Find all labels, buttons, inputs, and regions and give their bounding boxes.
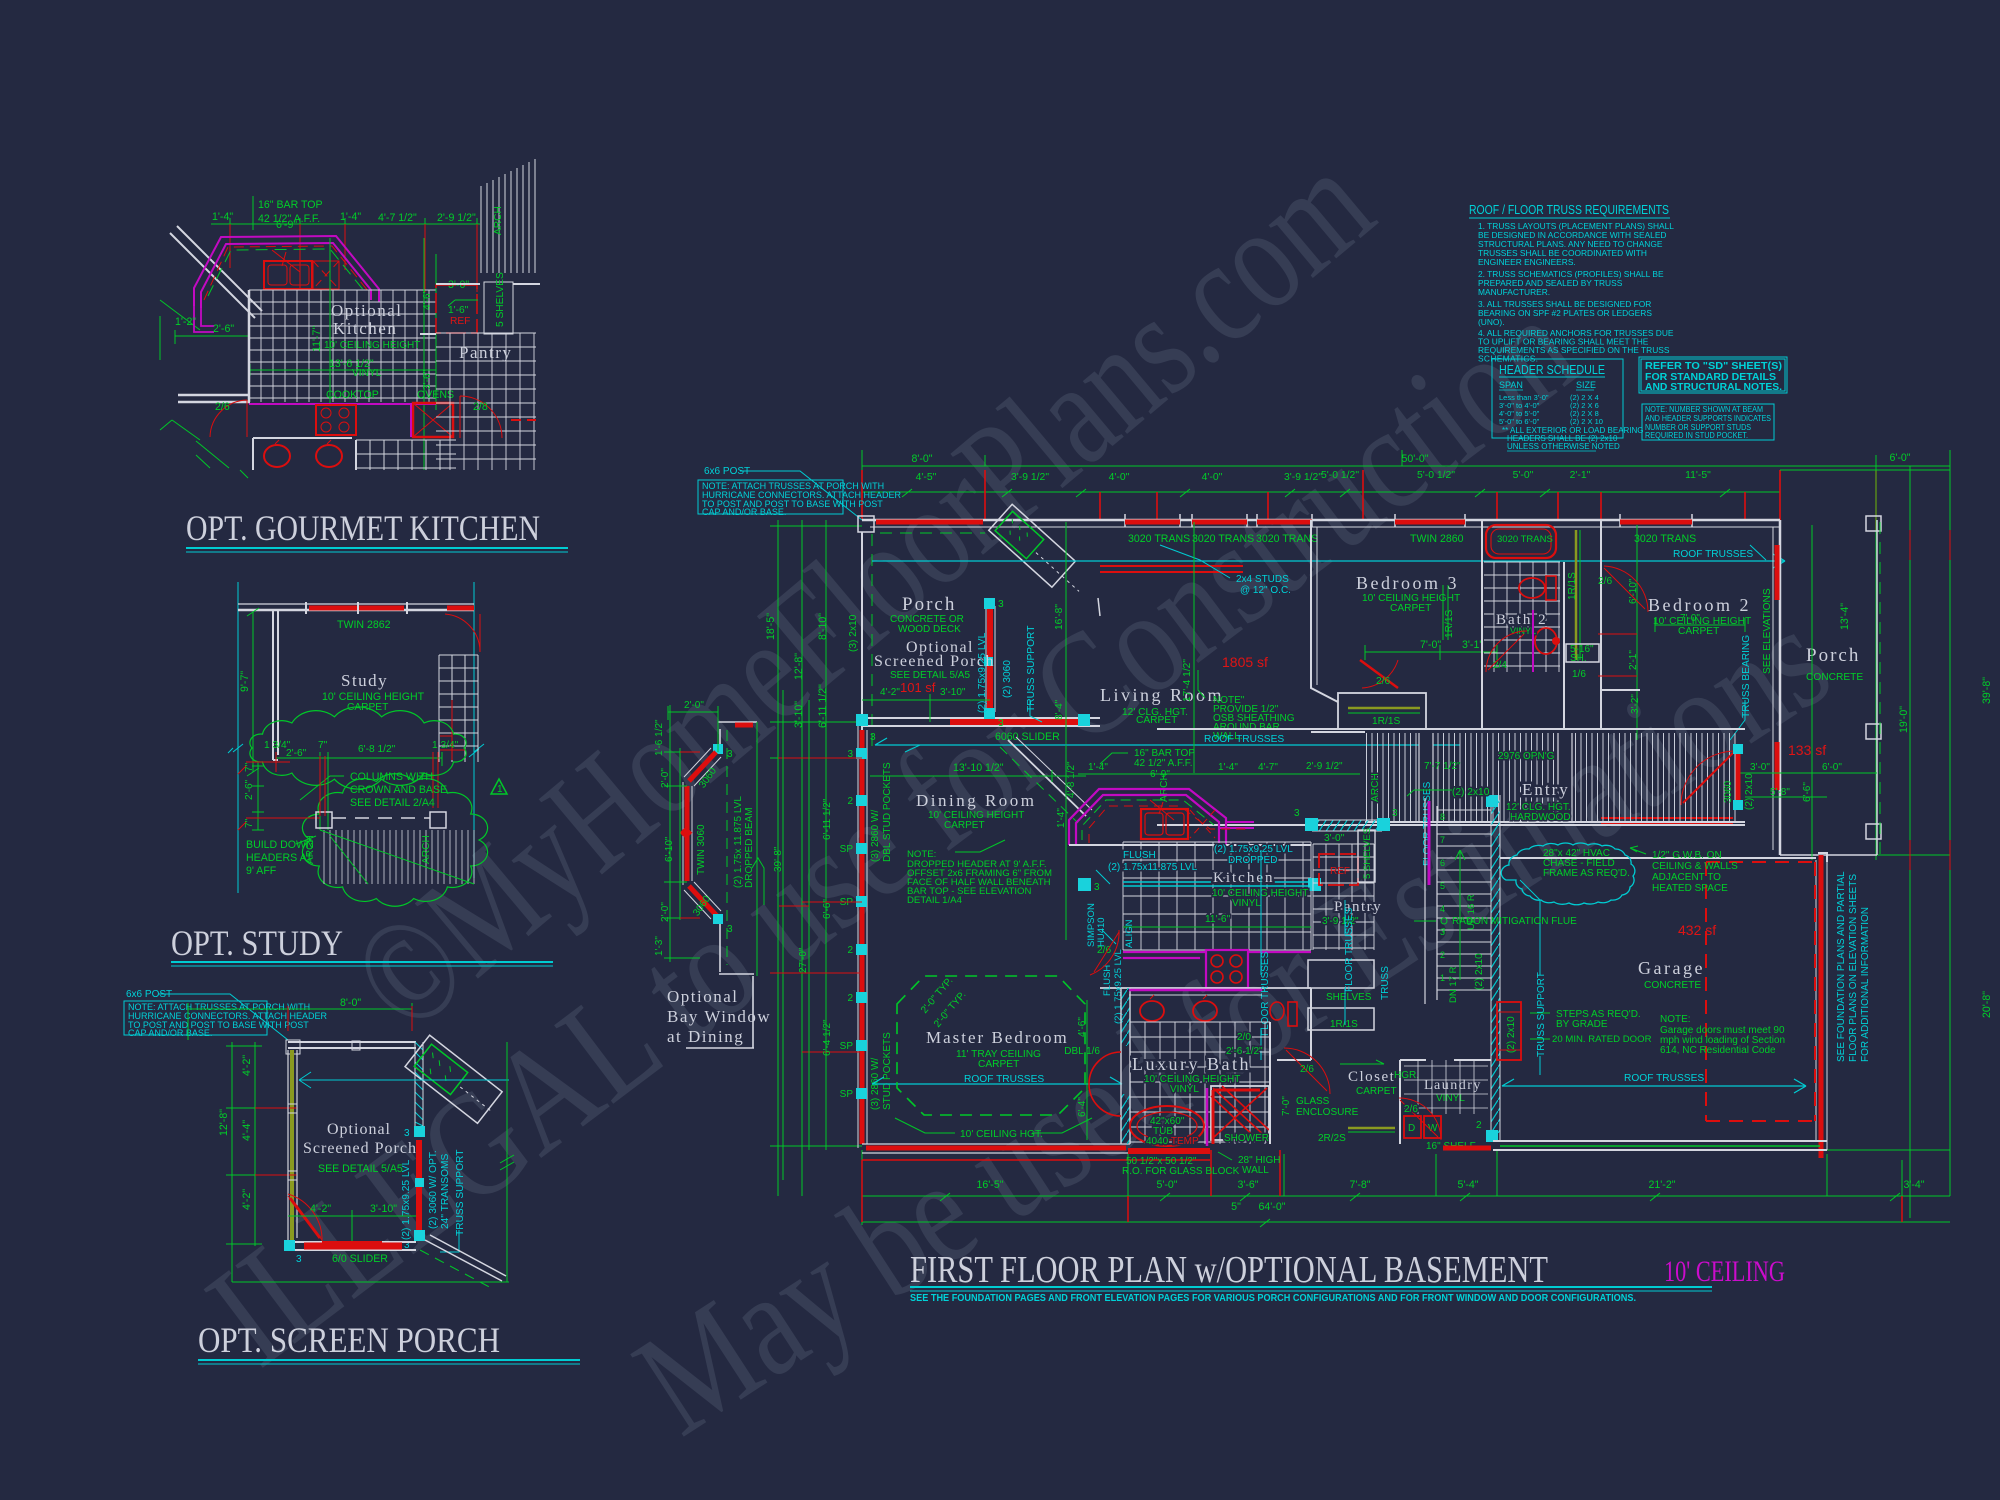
svg-text:CONCRETE: CONCRETE — [1806, 672, 1863, 683]
svg-text:9' AFF: 9' AFF — [246, 865, 277, 877]
svg-text:4'-5": 4'-5" — [916, 472, 937, 483]
svg-text:FOR ADDITIONAL INFORMATION: FOR ADDITIONAL INFORMATION — [1860, 907, 1871, 1062]
svg-text:CONCRETE: CONCRETE — [1644, 980, 1701, 991]
svg-text:2976 OPN'G: 2976 OPN'G — [1498, 751, 1555, 762]
svg-text:VINYL: VINYL — [1170, 1084, 1199, 1095]
svg-text:1R/1S: 1R/1S — [1444, 609, 1455, 638]
svg-text:CAP AND/OR BASE.: CAP AND/OR BASE. — [128, 1028, 212, 1038]
svg-text:4'-7 1/2": 4'-7 1/2" — [378, 212, 417, 224]
svg-text:27'-0": 27'-0" — [798, 947, 809, 973]
svg-text:DROPPED: DROPPED — [1228, 855, 1277, 866]
svg-text:4040 TEMP: 4040 TEMP — [1146, 1136, 1199, 1147]
svg-text:3: 3 — [998, 599, 1004, 610]
svg-text:5'-0": 5'-0" — [1156, 1179, 1177, 1191]
svg-text:9'-7": 9'-7" — [239, 671, 251, 692]
svg-text:RADON MITIGATION FLUE: RADON MITIGATION FLUE — [1452, 916, 1577, 927]
svg-text:11'-6": 11'-6" — [1205, 914, 1231, 925]
svg-text:R.O. FOR GLASS BLOCK: R.O. FOR GLASS BLOCK — [1122, 1166, 1240, 1177]
svg-text:4: 4 — [1440, 904, 1445, 914]
svg-text:REF: REF — [450, 316, 470, 327]
svg-text:(3) 2860 W/: (3) 2860 W/ — [870, 810, 881, 862]
svg-text:(UNO).: (UNO). — [1478, 317, 1505, 327]
svg-text:4'-6": 4'-6" — [1077, 1017, 1088, 1037]
svg-text:FIRST FLOOR PLAN w/OPTIONAL: FIRST FLOOR PLAN w/OPTIONAL BASEMENT — [910, 1249, 1548, 1291]
svg-text:DN 17 R: DN 17 R — [1448, 966, 1459, 1003]
svg-text:TRUSS BEARING: TRUSS BEARING — [1741, 635, 1752, 718]
svg-text:20'-8": 20'-8" — [1981, 991, 1993, 1018]
svg-text:5'-8": 5'-8" — [1770, 787, 1790, 798]
svg-text:(2) 1.75x9.25 LVL: (2) 1.75x9.25 LVL — [401, 1159, 412, 1240]
svg-text:REQUIRED IN STUD POCKET.: REQUIRED IN STUD POCKET. — [1645, 431, 1748, 440]
svg-text:614, NC Residential Code: 614, NC Residential Code — [1660, 1045, 1776, 1056]
svg-text:Luxury Bath: Luxury Bath — [1132, 1054, 1251, 1074]
svg-text:CARPET: CARPET — [1390, 603, 1431, 614]
svg-text:4'-2": 4'-2" — [880, 687, 900, 698]
svg-text:1R/1S: 1R/1S — [1330, 1019, 1358, 1030]
svg-text:6'-0": 6'-0" — [1822, 762, 1842, 773]
svg-text:(2) 2 X 10: (2) 2 X 10 — [1570, 417, 1603, 426]
svg-text:2: 2 — [847, 993, 853, 1004]
svg-text:Bedroom 2: Bedroom 2 — [1648, 595, 1751, 615]
svg-text:20 MIN. RATED DOOR: 20 MIN. RATED DOOR — [1552, 1034, 1652, 1045]
svg-text:SH.: SH. — [1570, 653, 1587, 664]
svg-text:VINYL: VINYL — [1436, 1093, 1465, 1104]
svg-text:7": 7" — [318, 740, 328, 751]
svg-text:432 sf: 432 sf — [1678, 922, 1716, 938]
svg-text:SHELVES: SHELVES — [1326, 992, 1372, 1003]
svg-text:AND STRUCTURAL NOTES.: AND STRUCTURAL NOTES. — [1645, 382, 1782, 393]
svg-text:6'-11 1/2": 6'-11 1/2" — [817, 684, 829, 728]
svg-text:8'-0": 8'-0" — [911, 453, 932, 465]
svg-text:11'-7": 11'-7" — [311, 326, 323, 352]
svg-text:5 SHELVES: 5 SHELVES — [495, 272, 506, 327]
svg-text:17'-4 1/2": 17'-4 1/2" — [1182, 659, 1193, 702]
svg-text:2'-0": 2'-0" — [684, 700, 704, 711]
svg-text:CARPET: CARPET — [1356, 1086, 1397, 1097]
svg-text:SEE FOUNDATION PLANS AND PARTI: SEE FOUNDATION PLANS AND PARTIAL — [1836, 871, 1847, 1062]
svg-text:UNLESS OTHERWISE NOTED: UNLESS OTHERWISE NOTED — [1507, 442, 1620, 451]
svg-text:Optional: Optional — [327, 1121, 391, 1138]
svg-text:39'-8": 39'-8" — [773, 846, 784, 872]
svg-text:TWIN 2862: TWIN 2862 — [337, 619, 391, 631]
svg-text:2: 2 — [847, 796, 853, 807]
svg-text:CROWN AND BASE: CROWN AND BASE — [350, 784, 447, 796]
svg-text:Screened Porch: Screened Porch — [874, 653, 995, 670]
svg-text:1'-6": 1'-6" — [448, 305, 469, 316]
svg-text:1/6: 1/6 — [1572, 669, 1586, 680]
svg-text:TRUSS: TRUSS — [1380, 966, 1391, 1000]
svg-text:(2) 1.75x9.25 LVL: (2) 1.75x9.25 LVL — [1214, 844, 1293, 855]
svg-text:7": 7" — [244, 762, 255, 772]
svg-text:1/2" G.W.B. ON: 1/2" G.W.B. ON — [1652, 850, 1722, 861]
svg-text:5'-0": 5'-0" — [1513, 470, 1534, 481]
svg-text:WOOD DECK: WOOD DECK — [898, 624, 961, 635]
svg-text:1 3/4": 1 3/4" — [432, 740, 459, 751]
svg-text:SP: SP — [840, 1089, 854, 1100]
svg-text:TWIN 2860: TWIN 2860 — [1410, 533, 1464, 545]
svg-text:HEADER SCHEDULE: HEADER SCHEDULE — [1499, 362, 1605, 377]
svg-text:5": 5" — [1231, 1201, 1241, 1213]
svg-text:3: 3 — [1094, 882, 1100, 893]
svg-text:1'-4": 1'-4" — [1088, 762, 1108, 773]
svg-text:6: 6 — [1440, 858, 1445, 868]
svg-text:ROOF TRUSSES: ROOF TRUSSES — [1204, 734, 1284, 745]
svg-text:3060: 3060 — [1723, 780, 1734, 803]
svg-text:7'-0": 7'-0" — [1680, 613, 1700, 624]
svg-text:3020 TRANS: 3020 TRANS — [1497, 534, 1553, 545]
svg-text:5: 5 — [1440, 881, 1445, 891]
svg-text:(2) 1.75x11.875 LVL: (2) 1.75x11.875 LVL — [1108, 862, 1198, 873]
svg-text:6'-6": 6'-6" — [822, 899, 833, 919]
svg-text:133 sf: 133 sf — [1788, 742, 1826, 758]
svg-text:ARCH: ARCH — [421, 835, 432, 864]
svg-text:1: 1 — [497, 784, 503, 795]
svg-text:39'-8": 39'-8" — [1981, 677, 1993, 704]
svg-text:WALL: WALL — [1242, 1165, 1269, 1176]
svg-text:12'-8": 12'-8" — [218, 1109, 230, 1136]
svg-text:6/0 SLIDER: 6/0 SLIDER — [332, 1253, 388, 1265]
svg-text:SP: SP — [840, 844, 854, 855]
svg-text:ALIGN: ALIGN — [1124, 919, 1135, 948]
svg-text:DETAIL 1/A4: DETAIL 1/A4 — [907, 895, 963, 906]
svg-text:3: 3 — [727, 749, 733, 760]
svg-text:(2) 2x10: (2) 2x10 — [1506, 1016, 1517, 1053]
svg-text:5 SHELVES: 5 SHELVES — [1362, 828, 1373, 879]
svg-text:18'-5": 18'-5" — [765, 613, 777, 640]
svg-text:6'-11 1/2": 6'-11 1/2" — [822, 798, 833, 840]
svg-text:ARCH: ARCH — [1370, 773, 1381, 802]
svg-text:3020 TRANS: 3020 TRANS — [1192, 533, 1254, 545]
svg-text:TRUSS SUPPORT: TRUSS SUPPORT — [1026, 626, 1037, 712]
svg-text:7": 7" — [244, 818, 255, 828]
svg-text:5'-4": 5'-4" — [1457, 1179, 1478, 1191]
svg-text:SP: SP — [840, 1041, 854, 1052]
svg-text:6'-4": 6'-4" — [1077, 1097, 1088, 1117]
svg-text:2'-6": 2'-6" — [244, 779, 255, 800]
svg-text:3'-6": 3'-6" — [1237, 1179, 1258, 1191]
svg-text:2'-9 1/2": 2'-9 1/2" — [437, 212, 476, 224]
svg-text:FLOOR PLANS ON ELEVATION SHEET: FLOOR PLANS ON ELEVATION SHEETS — [1848, 874, 1859, 1062]
svg-text:8'-10": 8'-10" — [817, 613, 829, 640]
svg-text:21'-2": 21'-2" — [1649, 1179, 1676, 1191]
svg-text:2/8: 2/8 — [473, 401, 488, 413]
svg-text:7'-7 1/2": 7'-7 1/2" — [1424, 761, 1461, 772]
svg-text:CAP AND/OR BASE.: CAP AND/OR BASE. — [702, 507, 786, 517]
svg-text:ENGINEER ENGINEERS.: ENGINEER ENGINEERS. — [1478, 257, 1576, 267]
svg-text:ROOF TRUSSES: ROOF TRUSSES — [1624, 1073, 1704, 1084]
svg-text:12'-8": 12'-8" — [793, 653, 805, 680]
svg-text:SEE DETAIL 2/A4: SEE DETAIL 2/A4 — [350, 797, 435, 809]
svg-text:Bedroom 3: Bedroom 3 — [1356, 573, 1459, 593]
svg-text:DBL STUD POCKETS: DBL STUD POCKETS — [882, 762, 893, 862]
svg-text:3'-4": 3'-4" — [1903, 1179, 1924, 1191]
svg-text:3'-9 1/2": 3'-9 1/2" — [1011, 472, 1049, 483]
svg-text:COLUMNS WITH: COLUMNS WITH — [350, 771, 433, 783]
svg-text:4'-7": 4'-7" — [1258, 762, 1278, 773]
svg-text:Study: Study — [341, 671, 388, 690]
svg-text:FRAME AS REQ'D.: FRAME AS REQ'D. — [1543, 868, 1630, 879]
svg-text:CARPET: CARPET — [1678, 626, 1719, 637]
svg-text:3: 3 — [1294, 808, 1300, 819]
svg-text:101 sf: 101 sf — [900, 680, 936, 695]
svg-text:7'-0": 7'-0" — [1281, 1096, 1292, 1116]
svg-text:2'-9 1/2": 2'-9 1/2" — [1306, 761, 1343, 772]
svg-text:Master Bedroom: Master Bedroom — [926, 1028, 1069, 1047]
svg-text:2'-0": 2'-0" — [660, 902, 671, 922]
svg-text:3'-6": 3'-6" — [422, 369, 433, 390]
svg-text:4'-2": 4'-2" — [241, 1055, 253, 1076]
svg-text:7'-0": 7'-0" — [1420, 639, 1441, 651]
svg-text:ROOF / FLOOR TRUSS REQUIREMEN: ROOF / FLOOR TRUSS REQUIREMENTS — [1469, 202, 1669, 217]
svg-text:TWIN 3060: TWIN 3060 — [696, 824, 707, 875]
svg-text:Optional: Optional — [331, 301, 403, 320]
svg-text:3: 3 — [1392, 808, 1398, 819]
svg-text:3: 3 — [296, 1254, 302, 1265]
svg-text:Porch: Porch — [1806, 645, 1860, 666]
svg-text:1'-4": 1'-4" — [1056, 808, 1067, 828]
svg-text:4'-4": 4'-4" — [241, 1120, 253, 1141]
svg-text:Living Room: Living Room — [1100, 685, 1224, 705]
svg-text:Pantry: Pantry — [1334, 899, 1382, 915]
svg-text:Dining Room: Dining Room — [916, 791, 1037, 810]
svg-text:OVENS: OVENS — [417, 389, 454, 401]
svg-text:2/6: 2/6 — [1300, 1064, 1314, 1075]
svg-text:SEE ELEVATIONS: SEE ELEVATIONS — [1762, 588, 1773, 674]
svg-text:64'-0": 64'-0" — [1259, 1201, 1286, 1213]
svg-text:6060 SLIDER: 6060 SLIDER — [995, 731, 1060, 743]
svg-text:Screened Porch: Screened Porch — [303, 1140, 417, 1157]
svg-text:Kitchen: Kitchen — [333, 319, 397, 338]
svg-text:1'-2": 1'-2" — [175, 316, 196, 328]
svg-text:2: 2 — [1440, 950, 1445, 960]
svg-text:HU410: HU410 — [1096, 917, 1107, 947]
svg-text:2'-6 1/2": 2'-6 1/2" — [1226, 1046, 1263, 1057]
svg-text:1R/1S: 1R/1S — [1567, 572, 1578, 600]
svg-text:6'-9": 6'-9" — [276, 219, 297, 231]
svg-text:3: 3 — [727, 924, 733, 935]
svg-text:FLUSH: FLUSH — [1123, 850, 1156, 861]
svg-text:10' CEILING HGT.: 10' CEILING HGT. — [960, 1129, 1043, 1140]
svg-text:REF: REF — [1330, 866, 1350, 877]
svg-text:2x4 STUDS: 2x4 STUDS — [1236, 574, 1289, 585]
svg-text:2: 2 — [1476, 1120, 1482, 1131]
svg-text:TRUSS SUPPORT: TRUSS SUPPORT — [455, 1150, 466, 1236]
svg-text:CARPET: CARPET — [978, 1059, 1019, 1070]
svg-text:@ 12" O.C.: @ 12" O.C. — [1240, 585, 1291, 596]
svg-text:1'-4": 1'-4" — [1218, 762, 1238, 773]
svg-text:2/6: 2/6 — [1376, 676, 1390, 687]
svg-text:4'-8 1/2": 4'-8 1/2" — [1066, 761, 1077, 798]
svg-text:6'-6": 6'-6" — [1802, 782, 1813, 802]
svg-text:6'-8 1/2": 6'-8 1/2" — [358, 744, 396, 755]
svg-text:Porch: Porch — [902, 594, 956, 615]
svg-text:8: 8 — [1440, 812, 1445, 822]
svg-text:1R/1S: 1R/1S — [1372, 716, 1401, 727]
svg-text:13'-10 1/2": 13'-10 1/2" — [953, 762, 1004, 774]
svg-text:Closet: Closet — [1348, 1069, 1395, 1085]
svg-text:3020 TRANS: 3020 TRANS — [1634, 533, 1696, 545]
svg-text:3'-10": 3'-10" — [370, 1203, 397, 1215]
svg-text:SHOWER: SHOWER — [1224, 1133, 1269, 1144]
svg-text:CARPET: CARPET — [1136, 715, 1177, 726]
svg-text:BY GRADE: BY GRADE — [1556, 1019, 1608, 1030]
svg-text:1'-6 1/2": 1'-6 1/2" — [654, 719, 665, 756]
svg-text:42 1/2" A.F.F.: 42 1/2" A.F.F. — [1134, 758, 1193, 769]
svg-text:NOTE:: NOTE: — [1660, 1014, 1691, 1025]
svg-text:3020 TRANS: 3020 TRANS — [1128, 533, 1190, 545]
svg-text:Entry: Entry — [1522, 780, 1570, 799]
svg-text:(2) 1.75x9.25 LVL: (2) 1.75x9.25 LVL — [977, 632, 988, 713]
svg-text:TRUSS SUPPORT: TRUSS SUPPORT — [1536, 972, 1547, 1057]
svg-text:Optional: Optional — [667, 987, 739, 1006]
svg-text:5'-0 1/2": 5'-0 1/2" — [1321, 470, 1359, 481]
svg-text:2'-0": 2'-0" — [660, 768, 671, 788]
svg-text:3'-10": 3'-10" — [793, 701, 805, 728]
svg-text:ENCLOSURE: ENCLOSURE — [1296, 1107, 1359, 1118]
svg-text:2/0: 2/0 — [1237, 1032, 1251, 1043]
svg-text:50'-0": 50'-0" — [1402, 453, 1429, 465]
svg-text:3'-2": 3'-2" — [1630, 694, 1641, 714]
svg-text:11'-5": 11'-5" — [1685, 470, 1711, 481]
svg-text:ADJACENT TO: ADJACENT TO — [1652, 872, 1721, 883]
svg-text:OPT. GOURMET KITCHEN: OPT. GOURMET KITCHEN — [186, 508, 540, 548]
svg-text:5'-0" to 6'-0": 5'-0" to 6'-0" — [1499, 417, 1540, 426]
svg-text:2'-1": 2'-1" — [1570, 470, 1591, 481]
svg-text:2R/2S: 2R/2S — [1318, 1133, 1346, 1144]
svg-text:3: 3 — [998, 718, 1004, 729]
svg-text:10' CEILING: 10' CEILING — [1664, 1255, 1785, 1288]
svg-text:2/6: 2/6 — [215, 401, 230, 413]
svg-text:(2) 2x10: (2) 2x10 — [1452, 787, 1490, 798]
svg-text:4'-2": 4'-2" — [310, 1203, 331, 1215]
svg-text:DBL 1/6: DBL 1/6 — [1064, 1046, 1100, 1057]
svg-text:DROPPED BEAM: DROPPED BEAM — [744, 807, 755, 888]
svg-text:(2) 1.75x 11.875 LVL: (2) 1.75x 11.875 LVL — [733, 796, 744, 888]
svg-text:2/6: 2/6 — [1404, 1104, 1418, 1115]
svg-text:4'-2": 4'-2" — [241, 1189, 253, 1210]
svg-text:ARCH: ARCH — [493, 206, 504, 235]
svg-text:HGR.: HGR. — [1394, 1070, 1419, 1081]
svg-text:(2) 3060 W/ OPT.: (2) 3060 W/ OPT. — [428, 1150, 439, 1229]
svg-text:GLASS: GLASS — [1296, 1096, 1330, 1107]
svg-text:2'-6": 2'-6" — [213, 323, 234, 335]
svg-text:2/4: 2/4 — [1493, 660, 1507, 671]
svg-text:HEATED SPACE: HEATED SPACE — [1652, 883, 1728, 894]
svg-text:1'-4": 1'-4" — [340, 211, 361, 223]
svg-text:4'-0": 4'-0" — [1109, 472, 1130, 483]
svg-text:SPAN: SPAN — [1499, 380, 1523, 390]
svg-text:1805 sf: 1805 sf — [1222, 654, 1268, 670]
svg-text:(2) 2x10: (2) 2x10 — [1474, 953, 1485, 990]
svg-text:SIZE: SIZE — [1576, 380, 1596, 390]
svg-text:19'-0": 19'-0" — [1898, 706, 1910, 733]
svg-text:OPT. STUDY: OPT. STUDY — [171, 923, 343, 963]
svg-text:3'-10": 3'-10" — [940, 687, 966, 698]
svg-text:Kitchen: Kitchen — [1213, 870, 1274, 886]
svg-text:NOTE: NUMBER SHOWN AT BEAM: NOTE: NUMBER SHOWN AT BEAM — [1645, 405, 1763, 414]
svg-text:7: 7 — [1440, 835, 1445, 845]
svg-text:OPT. SCREEN PORCH: OPT. SCREEN PORCH — [198, 1320, 500, 1360]
svg-text:3'-0": 3'-0" — [1324, 833, 1345, 844]
svg-text:3: 3 — [870, 732, 876, 743]
svg-text:7'-8": 7'-8" — [1349, 1179, 1370, 1191]
svg-text:FLUSH: FLUSH — [1102, 965, 1113, 996]
svg-text:CEILING & WALLS: CEILING & WALLS — [1652, 861, 1738, 872]
svg-text:3'-9 1/2": 3'-9 1/2" — [1284, 472, 1322, 483]
svg-text:FLOOR TRUSSES: FLOOR TRUSSES — [1344, 907, 1355, 992]
svg-text:8'-4": 8'-4" — [1054, 699, 1065, 720]
svg-text:(2) 2x10: (2) 2x10 — [1744, 773, 1755, 810]
svg-text:HEADERS AT: HEADERS AT — [246, 852, 313, 864]
svg-text:5'-0 1/2": 5'-0 1/2" — [1417, 470, 1455, 481]
svg-text:6'-4 1/2": 6'-4 1/2" — [822, 1019, 833, 1056]
svg-text:4'-6": 4'-6" — [422, 289, 433, 310]
svg-text:2: 2 — [847, 945, 853, 956]
svg-text:13'-6 1/2": 13'-6 1/2" — [329, 358, 374, 370]
svg-text:MANUFACTURER.: MANUFACTURER. — [1478, 287, 1550, 297]
svg-text:16'-8": 16'-8" — [1054, 604, 1065, 630]
svg-text:CARPET: CARPET — [944, 820, 985, 831]
svg-text:COOKTOP: COOKTOP — [326, 389, 379, 401]
svg-text:D: D — [1408, 1123, 1415, 1134]
svg-text:HARDWOOD: HARDWOOD — [1510, 812, 1571, 823]
svg-text:(3) 2x10: (3) 2x10 — [848, 614, 859, 652]
svg-text:16" BAR TOP: 16" BAR TOP — [258, 199, 323, 211]
svg-text:2'-6": 2'-6" — [286, 748, 307, 759]
svg-text:24" TRANSOMS: 24" TRANSOMS — [440, 1153, 451, 1229]
svg-text:13'-4": 13'-4" — [1839, 603, 1851, 630]
svg-text:4'-0": 4'-0" — [1202, 472, 1223, 483]
svg-text:2/6: 2/6 — [1598, 576, 1612, 587]
svg-text:10' CEILING HEIGHT: 10' CEILING HEIGHT — [324, 340, 420, 351]
svg-text:AND HEADER SUPPORTS INDICATES: AND HEADER SUPPORTS INDICATES — [1645, 414, 1771, 423]
svg-text:Garage: Garage — [1638, 958, 1705, 978]
svg-text:3: 3 — [404, 1128, 410, 1139]
svg-text:Bay Window: Bay Window — [667, 1007, 771, 1026]
svg-text:6'-0": 6'-0" — [1889, 452, 1910, 464]
svg-text:SEE DETAIL 5/A5: SEE DETAIL 5/A5 — [318, 1163, 403, 1175]
svg-text:REFER TO "SD" SHEET(S): REFER TO "SD" SHEET(S) — [1645, 361, 1782, 372]
svg-text:ROOF TRUSSES: ROOF TRUSSES — [1673, 549, 1753, 560]
svg-text:3'-1": 3'-1" — [1462, 639, 1483, 651]
svg-text:1'-3": 1'-3" — [654, 936, 665, 956]
svg-text:at Dining: at Dining — [667, 1027, 744, 1046]
svg-text:8'-0": 8'-0" — [340, 997, 361, 1009]
svg-text:16'-5": 16'-5" — [977, 1179, 1004, 1191]
svg-text:3020 TRANS: 3020 TRANS — [1256, 533, 1318, 545]
svg-text:VINYL: VINYL — [1232, 898, 1261, 909]
svg-text:STUD POCKETS: STUD POCKETS — [882, 1032, 893, 1110]
svg-text:Pantry: Pantry — [459, 343, 512, 362]
svg-text:(2) 3060: (2) 3060 — [1002, 660, 1013, 698]
svg-text:3'-0": 3'-0" — [1750, 762, 1770, 773]
svg-text:SEE THE FOUNDATION PAGES AND F: SEE THE FOUNDATION PAGES AND FRONT ELEVA… — [910, 1293, 1636, 1304]
svg-text:1: 1 — [1440, 973, 1445, 983]
